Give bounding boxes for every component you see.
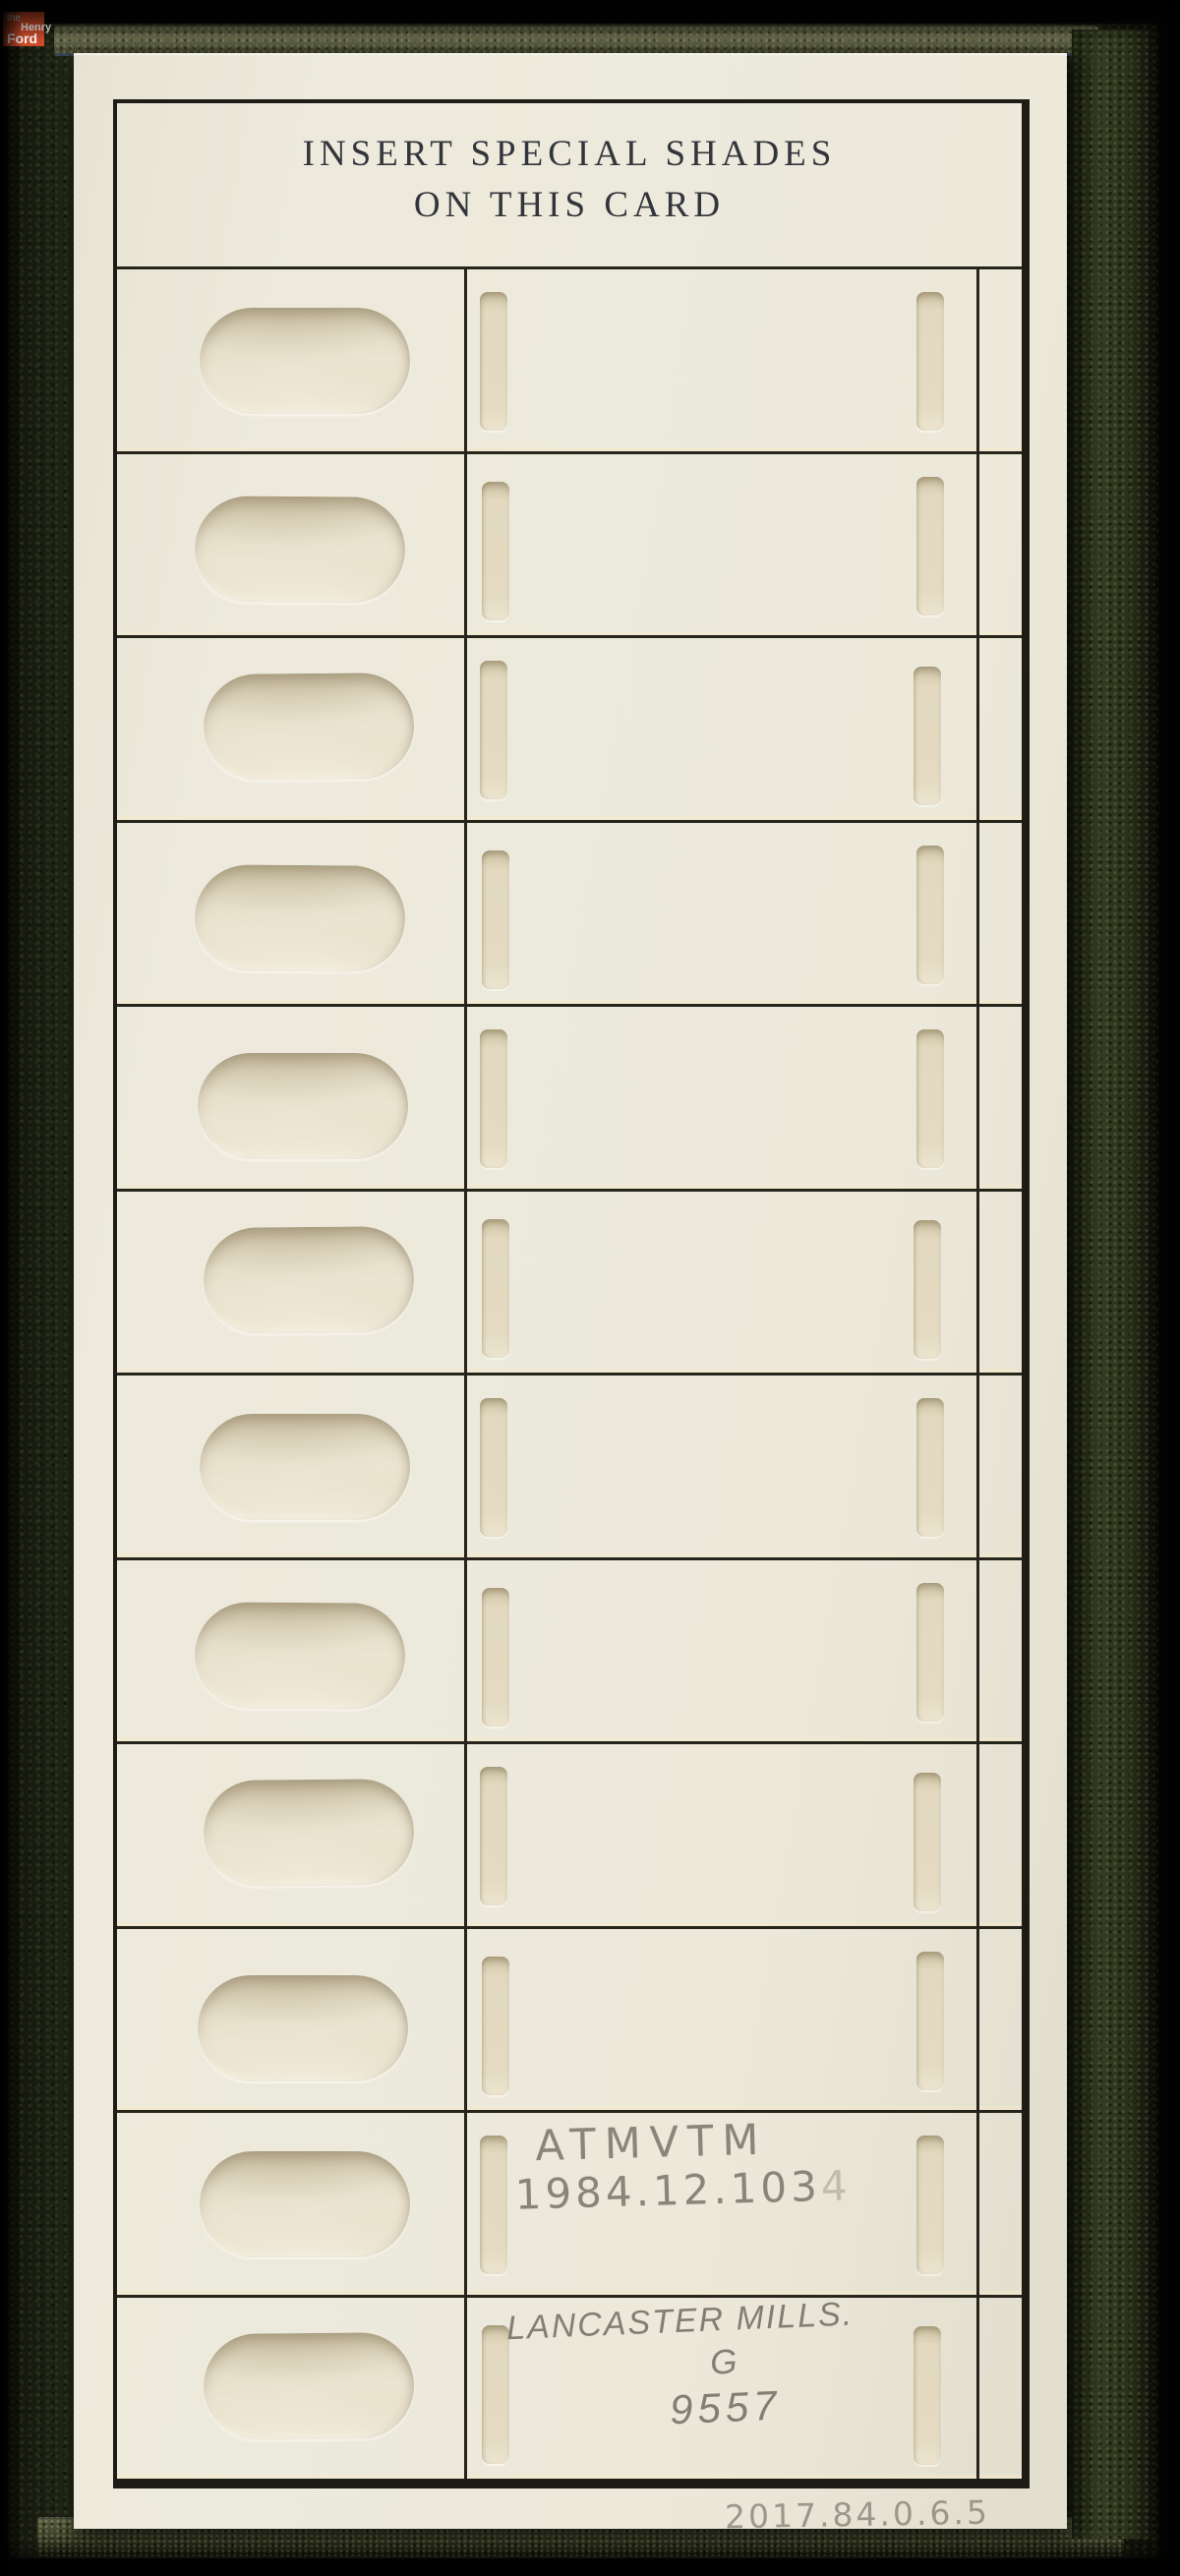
narrow-column: [976, 823, 1022, 1005]
shade-row: [117, 1557, 1022, 1742]
ribbon-slot-right: [916, 292, 944, 431]
ribbon-slot-left: [482, 1588, 509, 1727]
shade-oval-cutout: [195, 496, 406, 603]
ribbon-slot-right: [914, 1220, 941, 1359]
shade-sample-card: INSERT SPECIAL SHADES ON THIS CARD: [74, 53, 1067, 2529]
catalog-annotation-line2: 1984.12.1034: [514, 2163, 852, 2220]
ribbon-slot-left: [482, 1219, 509, 1358]
mill-annotation: LANCASTER MILLS. G 9557: [490, 2290, 957, 2442]
shade-oval-cutout: [204, 2332, 415, 2440]
accession-number-annotation: 2017.84.0.6.5: [725, 2493, 991, 2537]
shade-row: [117, 1741, 1022, 1926]
shade-row: [117, 1189, 1022, 1374]
ribbon-slot-right: [916, 1583, 944, 1722]
ribbon-slot-left: [480, 1767, 507, 1905]
ribbon-slot-right: [916, 2136, 944, 2274]
shade-row: [117, 451, 1022, 636]
shade-oval-cutout: [204, 673, 415, 781]
cover-spine-edge: [1072, 29, 1152, 2539]
shade-oval-cutout: [200, 308, 410, 414]
faint-digit: 4: [820, 2162, 852, 2211]
shade-row: [117, 635, 1022, 820]
ribbon-slot-right: [914, 1773, 941, 1911]
shade-oval-cutout: [195, 864, 406, 971]
shade-oval-cutout: [200, 2151, 410, 2257]
shade-row: [117, 1004, 1022, 1189]
narrow-column: [976, 1376, 1022, 1557]
ribbon-slot-right: [914, 667, 941, 805]
shade-oval-cutout: [204, 1779, 415, 1887]
ribbon-slot-right: [916, 477, 944, 615]
ribbon-slot-right: [916, 1952, 944, 2090]
ribbon-slot-right: [916, 846, 944, 984]
ribbon-slot-left: [480, 2136, 507, 2274]
narrow-column: [976, 1929, 1022, 2111]
narrow-column: [976, 1744, 1022, 1926]
ribbon-slot-left: [480, 661, 507, 799]
shade-oval-cutout: [198, 1053, 408, 1159]
cover-top-edge: [54, 26, 1098, 56]
shade-grid: ATMVTM 1984.12.1034 LANCASTER MILLS. G: [117, 266, 1022, 2479]
shade-oval-cutout: [200, 1414, 410, 1520]
shade-row: [117, 266, 1022, 451]
narrow-column: [976, 2298, 1022, 2480]
narrow-column: [976, 638, 1022, 820]
shade-row: [117, 820, 1022, 1005]
artifact-photo: INSERT SPECIAL SHADES ON THIS CARD: [0, 0, 1180, 2576]
shade-oval-cutout: [198, 1975, 408, 2081]
shade-row-mill-note: LANCASTER MILLS. G 9557: [117, 2295, 1022, 2480]
narrow-column: [976, 1192, 1022, 1374]
ribbon-slot-left: [482, 1957, 509, 2095]
ribbon-slot-left: [480, 1029, 507, 1168]
ribbon-slot-right: [916, 1398, 944, 1537]
shade-oval-cutout: [195, 1602, 406, 1709]
shade-row-catalog-note: ATMVTM 1984.12.1034: [117, 2110, 1022, 2295]
catalog-annotation: ATMVTM 1984.12.1034: [513, 2114, 853, 2219]
narrow-column: [976, 1560, 1022, 1742]
card-title: INSERT SPECIAL SHADES ON THIS CARD: [117, 103, 1022, 266]
shade-row: [117, 1373, 1022, 1557]
ribbon-slot-left: [482, 482, 509, 620]
narrow-column: [976, 2113, 1022, 2295]
ribbon-slot-right: [916, 1029, 944, 1168]
narrow-column: [976, 269, 1022, 451]
card-title-line2: ON THIS CARD: [117, 184, 1022, 227]
ribbon-slot-left: [482, 850, 509, 989]
logo-word-ford: Ford: [7, 32, 44, 45]
printed-border-frame: INSERT SPECIAL SHADES ON THIS CARD: [113, 99, 1030, 2488]
narrow-column: [976, 1007, 1022, 1189]
ribbon-slot-left: [480, 292, 507, 431]
narrow-column: [976, 454, 1022, 636]
henry-ford-logo: the Henry Ford: [3, 12, 44, 46]
ribbon-slot-left: [480, 1398, 507, 1537]
shade-oval-cutout: [204, 1226, 415, 1334]
shade-row: [117, 1926, 1022, 2111]
card-title-line1: INSERT SPECIAL SHADES: [117, 133, 1022, 176]
